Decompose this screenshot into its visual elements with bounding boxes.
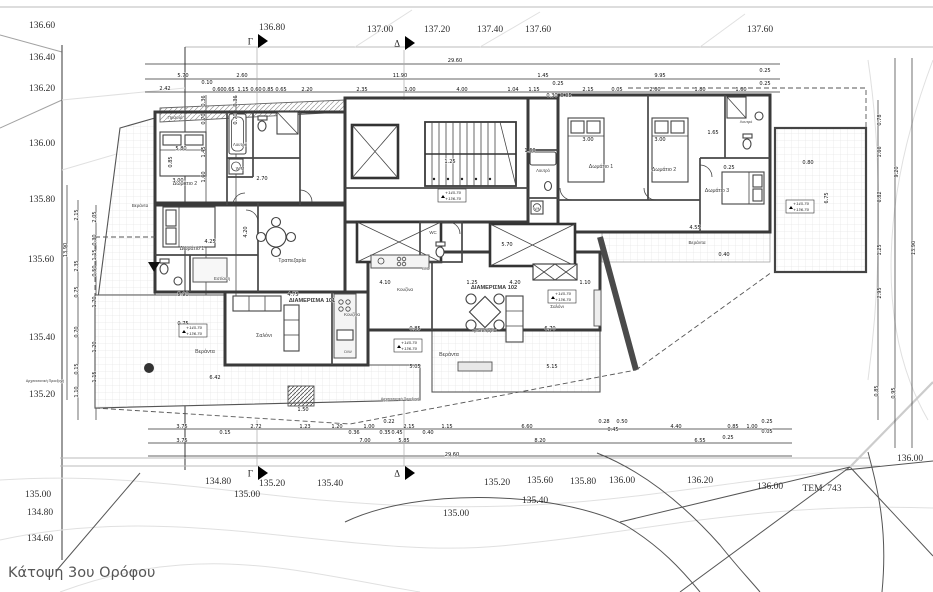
toilet-icon	[545, 182, 552, 191]
dimension-label: 1.60	[524, 148, 535, 154]
dimension-label: 0.75	[74, 286, 80, 297]
contour-label: 136.00	[29, 139, 55, 149]
level-value: +136.70	[401, 347, 418, 351]
dimension-label: 1.80	[694, 87, 705, 93]
room-label: Λουτρό	[233, 142, 248, 147]
contour-label: 135.60	[28, 255, 54, 265]
contour-label: 134.60	[27, 534, 53, 544]
bed-icon	[568, 118, 604, 182]
contour-label: 135.80	[29, 195, 55, 205]
room-label: ΔΙΑΜΕΡΙΣΜΑ 102	[471, 285, 517, 291]
dimension-label: 0.25	[759, 81, 770, 87]
room-label: Πρασιά	[167, 114, 182, 120]
toilet-icon	[258, 116, 267, 131]
dimension-label: 1.15	[441, 424, 452, 430]
section-flag-icon	[405, 36, 415, 50]
drawing-title: Κάτοψη 3ου Ορόφου	[8, 565, 155, 581]
room-label: Βεράντα	[132, 203, 149, 208]
dimension-label: 9.95	[654, 73, 665, 79]
door-arc	[560, 188, 572, 200]
contour-label: 136.80	[259, 23, 285, 33]
dimension-label: 1.00	[746, 424, 757, 430]
level-value: +136.70	[555, 298, 572, 302]
contour-label: 136.00	[609, 476, 635, 486]
contour-label: 136.60	[29, 21, 55, 31]
room-label: Αρχιτεκτονική Προεξοχή	[381, 397, 419, 401]
section-marker-Γ: Γ	[248, 34, 268, 48]
contour-label: 137.60	[747, 25, 773, 35]
dimension-label: 1.45	[537, 73, 548, 79]
dimension-label: 0.05	[560, 93, 571, 99]
dimension-label: 4.00	[456, 87, 467, 93]
sofa-icon	[284, 305, 299, 351]
level-marker: +145.70+136.70	[786, 200, 814, 213]
contour-label: 136.20	[687, 476, 713, 486]
dimension-label: 0.25	[552, 81, 563, 87]
floor-plan-page: 136.60136.40136.20136.00135.80135.60135.…	[0, 0, 933, 592]
dimension-label: 4.40	[670, 424, 681, 430]
door-arc	[300, 190, 312, 202]
dimension-label: 0.36	[201, 95, 207, 106]
dimension-label: 0.22	[383, 419, 394, 425]
dimension-label: 1.15	[528, 87, 539, 93]
contour-label: 135.80	[570, 477, 596, 487]
contour-label: 135.00	[25, 490, 51, 500]
dimension-label: 0.85	[727, 424, 738, 430]
section-letter: Δ	[394, 469, 400, 479]
room-label: Δωμάτιο 2	[173, 180, 197, 187]
dimension-label: 1.45	[201, 146, 207, 157]
room-label: Δωμάτιο 1	[180, 245, 204, 252]
dimension-label: 0.40	[718, 252, 729, 258]
dimension-label: 1.15	[92, 249, 98, 260]
dimension-label: 0.36	[233, 95, 239, 106]
section-flag-icon	[405, 466, 415, 480]
dimension-label: 0.70	[74, 326, 80, 337]
dimension-label: 0.50	[92, 265, 98, 276]
dimension-label: 4.10	[379, 280, 390, 286]
door-arc	[700, 165, 712, 177]
room-label: Τραπεζαρία	[278, 258, 306, 264]
room-label: D/W	[344, 349, 352, 354]
level-marker: +145.70+136.70	[548, 290, 576, 303]
dimension-label: 0.78	[877, 114, 883, 125]
contour-label: 137.40	[477, 25, 503, 35]
section-letter: Δ	[394, 39, 400, 49]
section-letter: Γ	[248, 469, 253, 479]
dimension-label: 11.90	[393, 73, 408, 79]
level-value: +145.70	[401, 341, 418, 345]
dimension-label: 5.90	[177, 292, 188, 298]
dining-table-icon	[257, 218, 296, 257]
dimension-label: 0.65	[223, 87, 234, 93]
dimension-label: 13.90	[911, 241, 917, 256]
dimension-label: 7.00	[359, 438, 370, 444]
dimension-label: 1.15	[237, 87, 248, 93]
level-value: +136.70	[186, 332, 203, 336]
vent-grille-icon	[533, 264, 577, 280]
dimension-label: 2.60	[236, 73, 247, 79]
dimension-label: 6.82	[877, 191, 883, 202]
room-label: Λουτρό	[536, 168, 550, 173]
room-label: Σαλόνι	[256, 332, 272, 339]
dimension-label: 2.35	[356, 87, 367, 93]
contour-label: 134.80	[205, 477, 231, 487]
dimension-label: 2.05	[92, 211, 98, 222]
door-arc	[448, 222, 460, 234]
dimension-label: 0.95	[891, 387, 897, 398]
contour-label: 137.20	[424, 25, 450, 35]
contour-label: 135.00	[234, 490, 260, 500]
planter-icon	[288, 386, 314, 406]
dimension-label: 5.15	[546, 364, 557, 370]
dimension-label: 2.70	[256, 176, 267, 182]
dimension-label: 5.05	[409, 364, 420, 370]
room-label: Αρχιτεκτονική Προεξοχή	[26, 379, 64, 383]
dimension-label: 3.75	[176, 438, 187, 444]
column	[144, 363, 154, 373]
dimension-label: 6.75	[824, 192, 830, 203]
dimension-label: 1.15	[92, 371, 98, 382]
section-marker-Δ: Δ	[394, 466, 415, 480]
contour-label: 136.20	[29, 84, 55, 94]
dimension-label: 1.60	[201, 171, 207, 182]
dimension-label: 0.85	[409, 326, 420, 332]
level-value: +145.70	[445, 191, 462, 195]
dimension-label: 0.05	[611, 87, 622, 93]
dimension-label: 1.25	[877, 244, 883, 255]
dimension-label: 6.70	[544, 326, 555, 332]
dimension-label: 2.20	[301, 87, 312, 93]
dimension-label: 1.10	[579, 280, 590, 286]
door-arc	[246, 210, 258, 222]
dimension-label: 0.25	[759, 68, 770, 74]
shower-icon	[727, 97, 746, 118]
dimension-label: 8.20	[534, 438, 545, 444]
contour-label: 137.60	[525, 25, 551, 35]
room-label: Βεράντα	[439, 351, 459, 358]
dimension-label: 2.15	[403, 424, 414, 430]
dimension-label: 2.35	[74, 260, 80, 271]
sink-icon	[174, 277, 182, 285]
contour-label: 136.40	[29, 53, 55, 63]
room-label: W/M	[236, 166, 245, 171]
dimension-label: 2.15	[74, 209, 80, 220]
dimension-label: 0.70	[233, 113, 239, 124]
dimension-label: 2.95	[877, 287, 883, 298]
dimension-label: 0.25	[761, 419, 772, 425]
sink-icon	[755, 112, 763, 120]
section-flag-icon	[258, 466, 268, 480]
floor-plan-canvas: 136.60136.40136.20136.00135.80135.60135.…	[0, 0, 933, 592]
dining-table-icon	[466, 294, 504, 330]
dimension-label: 3.75	[176, 424, 187, 430]
bed-icon	[160, 132, 206, 176]
room-label: Δωμάτιο 1	[589, 163, 613, 170]
dimension-label: 0.15	[219, 430, 230, 436]
dimension-label: 1.66	[877, 146, 883, 157]
door-arc	[644, 188, 656, 200]
dimension-label: 3.00	[654, 137, 665, 143]
dimension-label: 0.40	[422, 430, 433, 436]
room-label: Τραπεζαρία	[471, 328, 496, 334]
room-label: W/M	[533, 206, 541, 211]
dimension-label: 29.60	[448, 58, 463, 64]
dimension-label: 0.60	[212, 87, 223, 93]
bench-icon	[458, 362, 492, 371]
room-label: WC	[429, 230, 436, 235]
contour-label: 135.20	[484, 478, 510, 488]
dimension-label: 4.20	[243, 226, 249, 237]
dimension-label: 2.72	[250, 424, 261, 430]
dimension-label: 0.65	[275, 87, 286, 93]
dimension-label: 1.70	[92, 296, 98, 307]
dimension-label: 2.15	[582, 87, 593, 93]
dimension-label: 13.90	[63, 243, 69, 258]
dimension-label: 29.60	[445, 452, 460, 458]
dimension-label: 0.05	[761, 429, 772, 435]
dimension-label: 0.80	[802, 160, 813, 166]
contour-label: 135.00	[443, 509, 469, 519]
dimension-label: 0.28	[598, 419, 609, 425]
level-value: +136.70	[793, 208, 810, 212]
room-label: Κουζίνα	[397, 287, 413, 293]
contour-label: 137.00	[367, 25, 393, 35]
dimension-label: 0.85	[262, 87, 273, 93]
dimension-label: 1.20	[92, 341, 98, 352]
dimension-label: 1.23	[299, 424, 310, 430]
room-label: Σαλόνι	[550, 303, 564, 309]
tv-unit-icon	[594, 290, 601, 326]
dimension-label: 6.60	[521, 424, 532, 430]
dimension-label: 0.15	[74, 363, 80, 374]
dimension-label: 1.00	[404, 87, 415, 93]
dimension-label: 3.00	[582, 137, 593, 143]
shower-icon	[277, 112, 298, 134]
dimension-label: 4.25	[204, 239, 215, 245]
dimension-label: 0.36	[348, 430, 359, 436]
contour-labels-top: 136.80137.00137.20137.40137.60137.60	[259, 23, 773, 35]
dimension-label: 6.42	[209, 375, 220, 381]
staircase-icon	[425, 122, 516, 186]
sofa-icon	[506, 296, 523, 342]
parcel-label: ΤΕΜ. 743	[802, 484, 841, 494]
level-value: +145.70	[793, 202, 810, 206]
dimension-label: 0.85	[168, 156, 174, 167]
section-flag-icon	[258, 34, 268, 48]
contour-label: 135.20	[259, 479, 285, 489]
toilet-icon	[160, 259, 169, 274]
section-marker-Γ: Γ	[248, 466, 268, 480]
contour-label: 135.40	[522, 496, 548, 506]
toilet-icon	[743, 134, 752, 149]
room-label: Δωμάτιο 2	[652, 166, 676, 173]
dimension-label: 0.35	[379, 430, 390, 436]
kitchen-counter-icon	[371, 255, 429, 268]
level-value: +145.70	[186, 326, 203, 330]
dimension-label: 9.20	[894, 166, 900, 177]
level-value: +136.70	[445, 197, 462, 201]
section-marker-Δ: Δ	[394, 36, 415, 50]
level-value: +145.70	[555, 292, 572, 296]
dimension-label: 1.04	[507, 87, 518, 93]
dimension-label: 4.55	[689, 225, 700, 231]
dimension-label: 0.10	[201, 80, 212, 86]
dimension-label: 0.45	[391, 430, 402, 436]
dimension-label: 1.65	[707, 130, 718, 136]
contour-label: 135.40	[317, 479, 343, 489]
dimension-label: 0.25	[723, 165, 734, 171]
dimension-label: 0.30	[92, 234, 98, 245]
sofa-icon	[233, 296, 281, 311]
dimension-label: 5.80	[175, 146, 186, 152]
room-label: Δωμάτιο 3	[705, 187, 729, 194]
dimension-label: 0.50	[616, 419, 627, 425]
dimension-label: 0.70	[201, 113, 207, 124]
dimension-label: 5.70	[177, 73, 188, 79]
dimension-label: 1.50	[297, 407, 308, 413]
contour-label: 135.60	[527, 476, 553, 486]
dimension-label: 1.60	[735, 87, 746, 93]
dimension-label: 0.85	[874, 385, 880, 396]
contour-label: 134.80	[27, 508, 53, 518]
contour-labels-left: 136.60136.40136.20136.00135.80135.60135.…	[25, 21, 55, 544]
room-label: Βεράντα	[688, 239, 705, 245]
level-marker: +145.70+136.70	[438, 189, 466, 202]
dimension-label: 1.00	[363, 424, 374, 430]
dimension-label: 0.60	[250, 87, 261, 93]
contour-label: 135.40	[29, 333, 55, 343]
dimension-label: 0.45	[607, 427, 618, 433]
contour-label: 135.20	[29, 390, 55, 400]
room-label: ΔΙΑΜΕΡΙΣΜΑ 101	[289, 298, 335, 304]
room-label: Εστίαση	[214, 276, 231, 281]
dimension-label: 0.25	[722, 435, 733, 441]
dimension-label: 6.55	[694, 438, 705, 444]
dimension-label: 1.25	[444, 159, 455, 165]
room-label: Λουτρό	[740, 120, 753, 124]
room-label: D/W	[422, 266, 430, 271]
contour-label: 136.00	[757, 482, 783, 492]
contour-label: 136.00	[897, 454, 923, 464]
room-label: Βεράντα	[195, 348, 215, 355]
dimension-label: 0.30	[546, 93, 557, 99]
dimension-label: 2.42	[159, 86, 170, 92]
toilet-icon	[436, 242, 445, 257]
level-marker: +145.70+136.70	[179, 324, 207, 337]
dimension-label: 1.10	[74, 386, 80, 397]
dimension-label: 2.60	[649, 87, 660, 93]
dimension-label: 5.70	[501, 242, 512, 248]
section-letter: Γ	[248, 37, 253, 47]
dimension-label: 1.20	[331, 424, 342, 430]
dimension-label: 5.85	[398, 438, 409, 444]
level-marker: +145.70+136.70	[394, 339, 422, 352]
